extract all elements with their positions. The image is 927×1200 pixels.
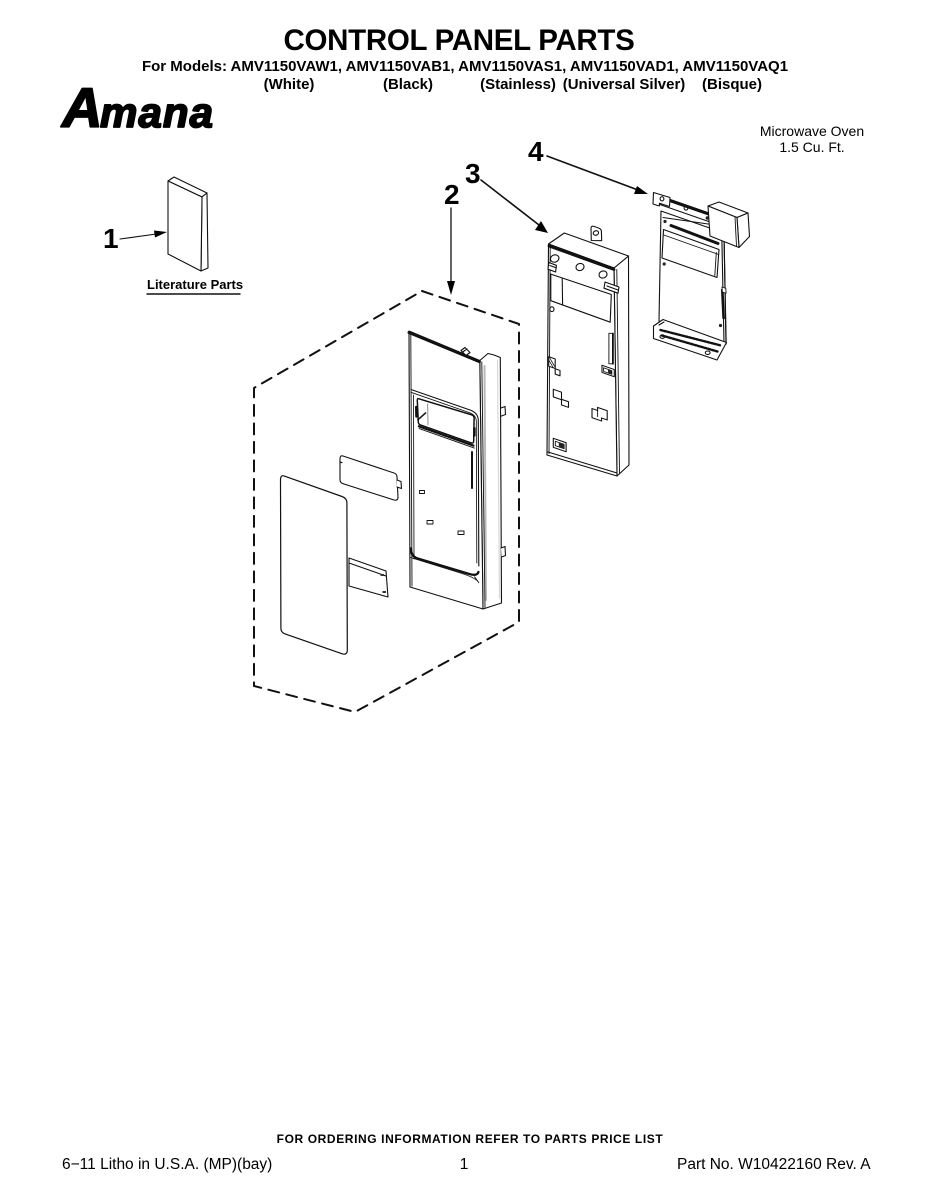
svg-text:4: 4 [528,136,544,167]
svg-text:2: 2 [444,179,460,210]
svg-text:Literature Parts: Literature Parts [147,277,243,292]
svg-text:A: A [60,76,100,139]
svg-text:3: 3 [465,158,481,189]
svg-text:mana: mana [100,89,214,136]
svg-text:1: 1 [103,223,119,254]
